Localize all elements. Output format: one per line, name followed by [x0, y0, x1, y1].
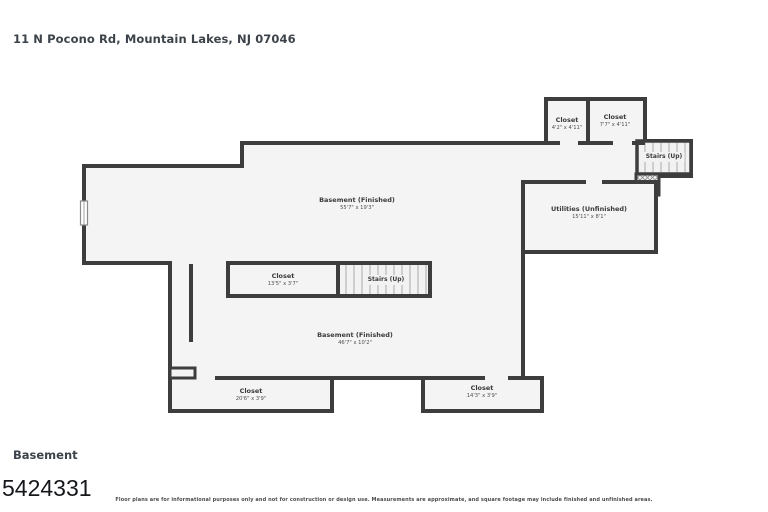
room-dims: 55'7" x 19'3" — [319, 205, 395, 212]
room-name: Closet — [467, 384, 498, 393]
outer-walls — [84, 99, 691, 411]
wall-notch — [170, 368, 195, 378]
room-dims: 15'11" x 8'1" — [551, 214, 627, 221]
room-name: Utilities (Unfinished) — [551, 205, 627, 214]
room-dims: 13'5" x 3'7" — [268, 281, 299, 288]
room-label-closet-top-large: Closet 7'7" x 4'11" — [600, 113, 631, 129]
room-label-closet-bottom-left: Closet 20'6" x 3'9" — [236, 387, 267, 403]
floorplan-drawing — [0, 0, 768, 512]
room-label-closet-top-small: Closet 4'2" x 4'11" — [552, 116, 583, 132]
room-name: Stairs (Up) — [366, 275, 407, 285]
room-dims: 46'7" x 10'2" — [317, 340, 393, 347]
room-dims: 7'7" x 4'11" — [600, 122, 631, 129]
window-icon — [81, 201, 88, 225]
room-name: Closet — [268, 272, 299, 281]
room-name: Stairs (Up) — [644, 152, 685, 162]
room-dims: 20'6" x 3'9" — [236, 396, 267, 403]
floor-label: Basement — [13, 448, 78, 462]
room-name: Basement (Finished) — [319, 196, 395, 205]
room-name: Closet — [552, 116, 583, 125]
room-name: Closet — [236, 387, 267, 396]
room-dims: 4'2" x 4'11" — [552, 125, 583, 132]
room-label-basement-upper: Basement (Finished) 55'7" x 19'3" — [319, 196, 395, 212]
room-label-stairs-mid: Stairs (Up) — [366, 275, 407, 285]
disclaimer-text: Floor plans are for informational purpos… — [0, 497, 768, 503]
room-label-stairs-top: Stairs (Up) — [644, 152, 685, 162]
room-label-closet-bottom-right: Closet 14'3" x 3'9" — [467, 384, 498, 400]
room-label-closet-mid: Closet 13'5" x 3'7" — [268, 272, 299, 288]
room-dims: 14'3" x 3'9" — [467, 393, 498, 400]
room-label-basement-lower: Basement (Finished) 46'7" x 10'2" — [317, 331, 393, 347]
room-name: Basement (Finished) — [317, 331, 393, 340]
room-name: Closet — [600, 113, 631, 122]
floorplan-page: 11 N Pocono Rd, Mountain Lakes, NJ 07046 — [0, 0, 768, 512]
room-label-utilities: Utilities (Unfinished) 15'11" x 8'1" — [551, 205, 627, 221]
